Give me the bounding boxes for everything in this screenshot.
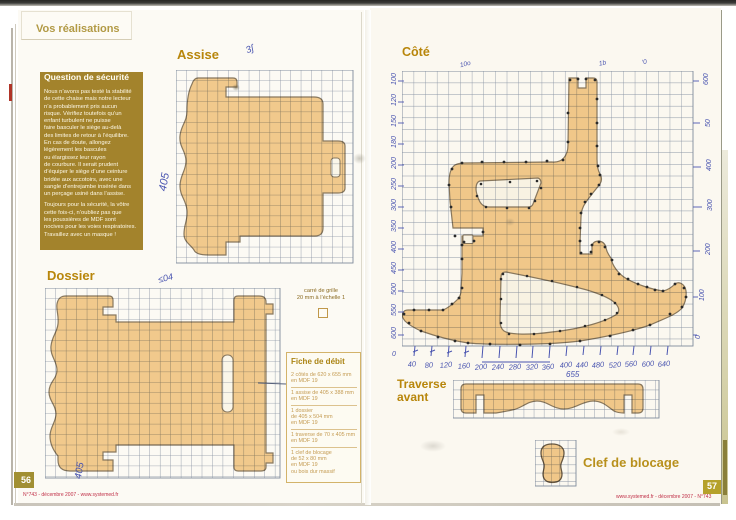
svg-text:150: 150	[389, 115, 398, 127]
svg-text:640: 640	[657, 359, 671, 369]
svg-text:450: 450	[389, 262, 398, 274]
svg-text:520: 520	[608, 360, 622, 370]
svg-text:320: 320	[525, 362, 539, 372]
svg-text:440: 440	[575, 360, 589, 370]
svg-text:100: 100	[699, 289, 706, 301]
svg-text:0: 0	[392, 351, 396, 358]
svg-text:350: 350	[389, 220, 398, 232]
svg-text:250: 250	[389, 178, 398, 191]
svg-text:50: 50	[705, 119, 712, 127]
svg-text:100: 100	[389, 73, 398, 85]
svg-text:200: 200	[705, 243, 712, 256]
svg-text:560: 560	[624, 359, 638, 369]
svg-text:200: 200	[389, 157, 398, 170]
svg-text:400: 400	[706, 159, 713, 171]
svg-text:400: 400	[389, 241, 398, 253]
svg-text:300: 300	[389, 199, 398, 211]
svg-text:600: 600	[641, 359, 655, 369]
svg-text:200: 200	[473, 362, 488, 372]
svg-text:480: 480	[591, 360, 605, 370]
svg-text:80: 80	[424, 360, 434, 370]
svg-text:550: 550	[389, 304, 398, 316]
svg-text:655: 655	[566, 370, 580, 379]
svg-text:280: 280	[507, 362, 522, 372]
svg-text:600: 600	[389, 327, 398, 339]
svg-text:0: 0	[695, 335, 702, 339]
svg-text:300: 300	[707, 199, 714, 211]
svg-text:400: 400	[559, 360, 573, 370]
svg-text:360: 360	[541, 362, 555, 372]
svg-text:180: 180	[389, 136, 398, 148]
svg-text:40: 40	[407, 359, 417, 369]
svg-text:240: 240	[490, 362, 505, 372]
svg-text:160: 160	[457, 361, 471, 371]
svg-text:500: 500	[389, 283, 398, 295]
svg-text:120: 120	[389, 94, 398, 106]
svg-text:120: 120	[439, 360, 453, 370]
svg-text:600: 600	[703, 73, 710, 85]
